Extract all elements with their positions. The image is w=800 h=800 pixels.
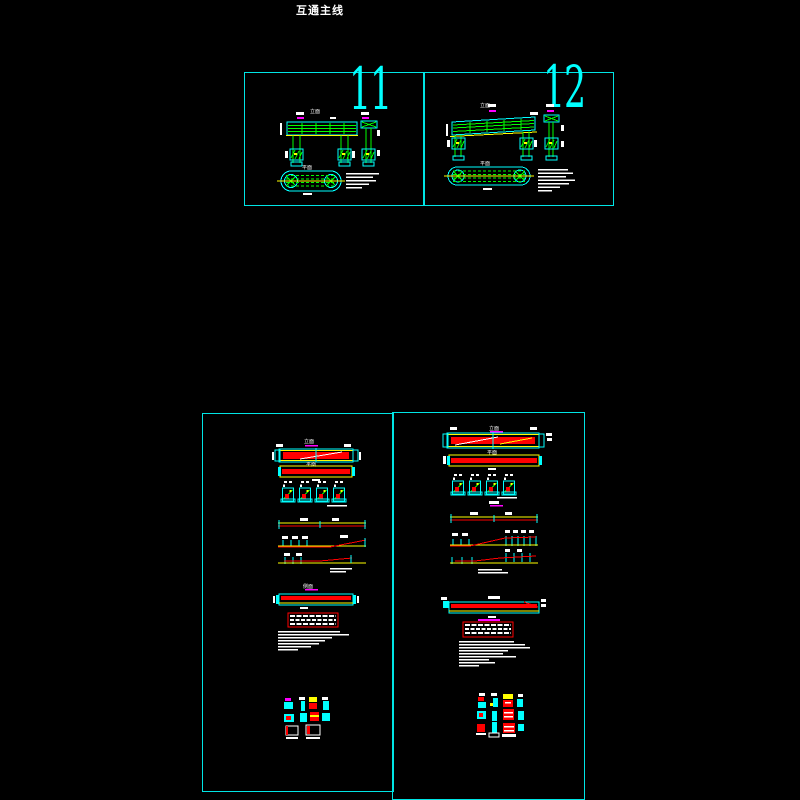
rebar-layout-row1-bl	[278, 518, 366, 529]
rebar-layout-row2-bl	[278, 535, 366, 547]
pier-elevation-view-11: 立面	[280, 108, 358, 166]
pilecap-plan-view-11: 平面	[277, 165, 345, 195]
rebar-layout-row3-bl	[278, 553, 366, 573]
notes-block-12	[538, 169, 575, 192]
pier-side-view-12	[544, 104, 564, 160]
cad-canvas: 互通主线 11 12	[0, 0, 800, 800]
svg-text:平面: 平面	[302, 165, 312, 171]
notes-block-bl	[278, 631, 349, 651]
capbeam-sections-bl	[281, 481, 347, 507]
capbeam-elevation-bl: 立面	[272, 438, 361, 462]
svg-text:立面: 立面	[489, 425, 499, 432]
svg-text:侧面: 侧面	[303, 583, 313, 590]
pier-elevation-view-12: 立面	[446, 102, 538, 160]
rebar-schedule-table-br	[463, 619, 513, 637]
rebar-shape-details-bl	[284, 697, 330, 739]
capbeam-plan-bl: 平面	[278, 462, 355, 481]
svg-text:平面: 平面	[306, 462, 316, 468]
rebar-schedule-table-bl	[288, 613, 338, 627]
svg-text:立面: 立面	[310, 108, 320, 115]
notes-block-11	[346, 173, 379, 189]
rebar-layout-row3-br	[450, 549, 538, 574]
drawing-linework: 立面	[0, 0, 800, 800]
svg-text:平面: 平面	[480, 161, 490, 167]
notes-block-br	[459, 641, 530, 667]
capbeam-side-elevation-br	[441, 596, 546, 618]
capbeam-elevation-br: 立面	[443, 425, 552, 449]
capbeam-plan-br: 平面	[443, 450, 542, 470]
pilecap-plan-view-12: 平面	[444, 161, 534, 190]
capbeam-side-elevation-bl: 侧面	[273, 583, 359, 609]
capbeam-sections-br	[451, 474, 517, 499]
rebar-layout-row2-br	[450, 530, 538, 546]
rebar-shape-details-br	[476, 693, 524, 737]
rebar-layout-row1-br	[450, 501, 538, 523]
svg-text:立面: 立面	[304, 438, 314, 445]
pier-side-view-11	[361, 112, 380, 166]
